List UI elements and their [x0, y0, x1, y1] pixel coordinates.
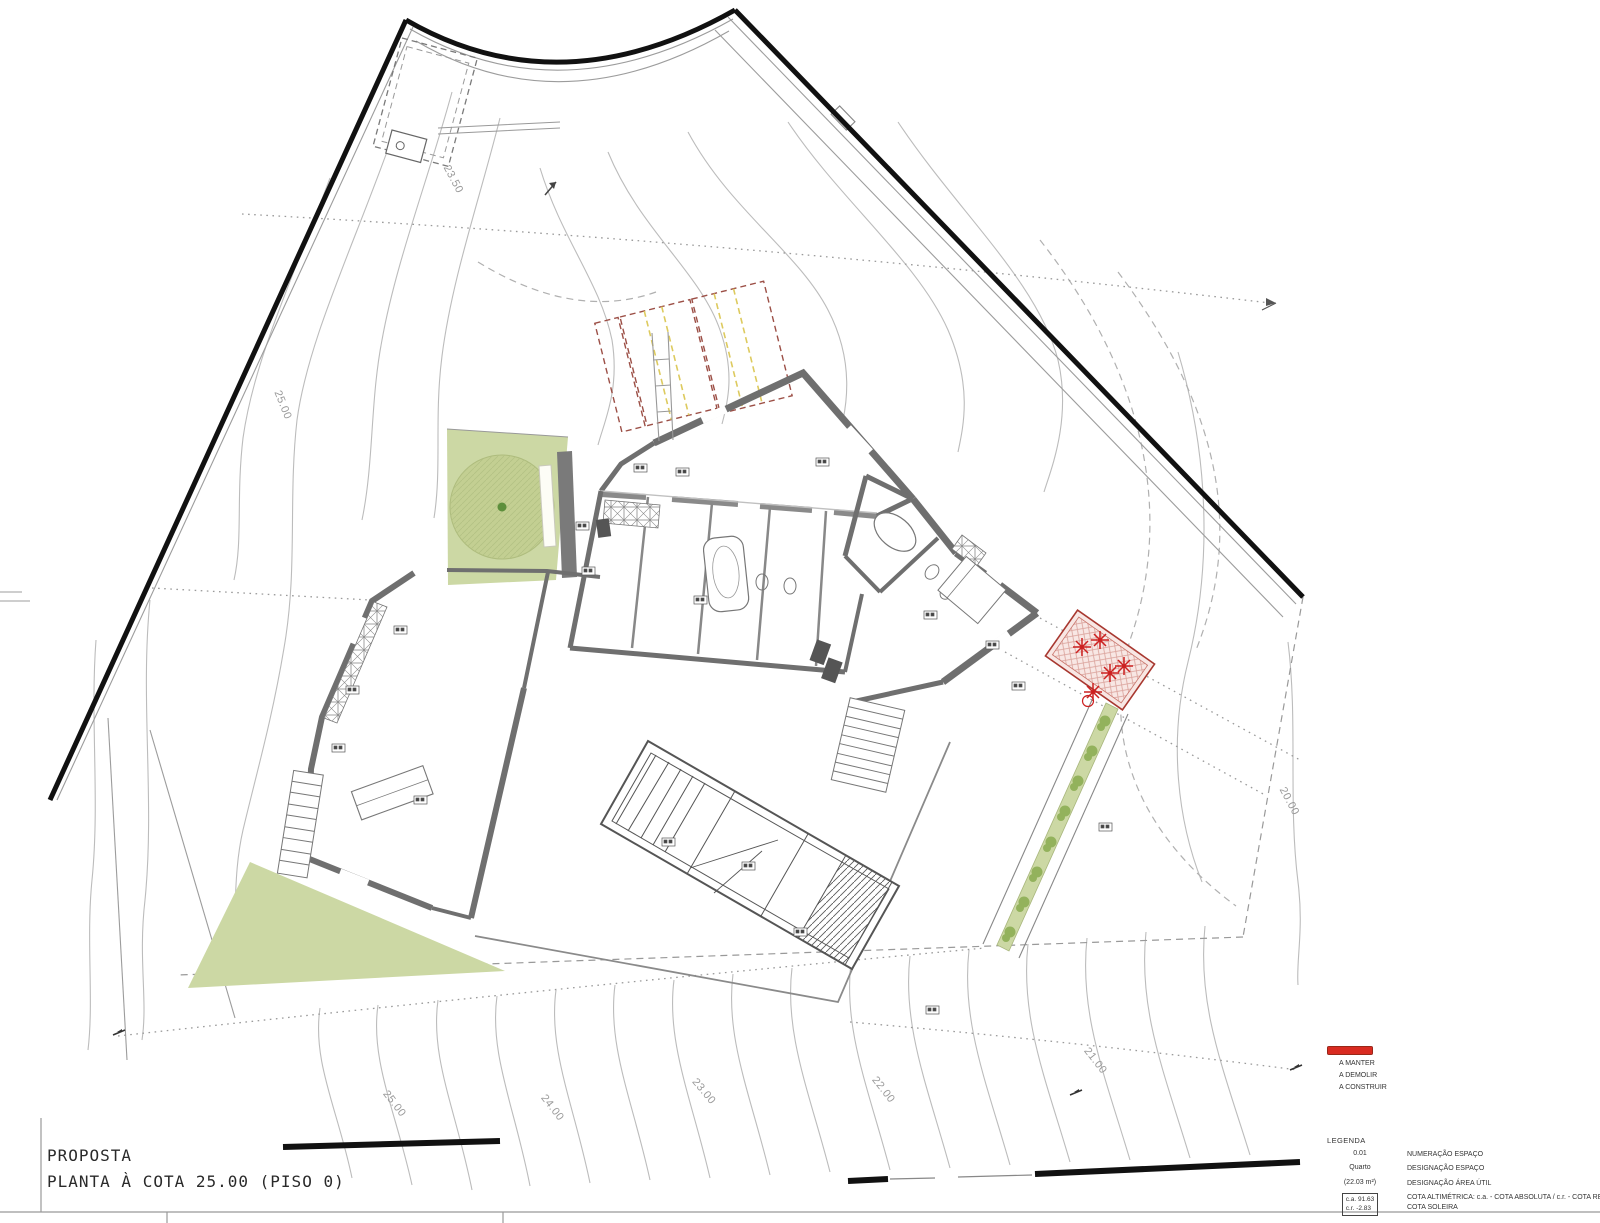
cota-box: c.a. 91.63c.r. -2.83 — [1342, 1193, 1379, 1215]
arrow-marker — [1262, 298, 1276, 310]
space-label — [346, 686, 359, 694]
toilet — [922, 562, 941, 582]
swatch-construir — [1327, 1046, 1373, 1055]
space-label — [794, 928, 807, 936]
symbol-sample: 0.01 — [1327, 1150, 1393, 1157]
space-label — [394, 626, 407, 634]
space-label — [926, 1006, 939, 1014]
symbol-description: DESIGNAÇÃO ESPAÇO — [1407, 1164, 1600, 1173]
space-label — [742, 862, 755, 870]
symbol-description: DESIGNAÇÃO ÁREA ÚTIL — [1407, 1179, 1600, 1188]
legend-row-designacao: Quarto DESIGNAÇÃO ESPAÇO — [1327, 1164, 1600, 1173]
legend-colors: LEGENDA A MANTER A DEMOLIR A CONSTRUIR — [1327, 1046, 1387, 1096]
toilet — [784, 578, 796, 594]
symbol-description: COTA ALTIMÉTRICA: c.a. - COTA ABSOLUTA /… — [1407, 1193, 1600, 1212]
title-block: PROPOSTA PLANTA À COTA 25.00 (PISO 0) — [47, 1146, 345, 1191]
kitchen-island — [351, 766, 433, 820]
space-label — [1012, 682, 1025, 690]
space-label — [1099, 823, 1112, 831]
legend-label: A DEMOLIR — [1339, 1072, 1377, 1079]
space-label — [662, 838, 675, 846]
space-label — [634, 464, 647, 472]
benchmark-marker — [1290, 1064, 1302, 1070]
site-plan-sheet: 23.50 25.00 25.00 24.00 23.00 22.00 21.0… — [0, 0, 1600, 1223]
legend-row-area: (22.03 m²) DESIGNAÇÃO ÁREA ÚTIL — [1327, 1179, 1600, 1188]
legend-symbols: LEGENDA 0.01 NUMERAÇÃO ESPAÇO Quarto DES… — [1327, 1136, 1600, 1221]
legend-label: A CONSTRUIR — [1339, 1084, 1387, 1091]
legend-row-cota: c.a. 91.63c.r. -2.83 COTA ALTIMÉTRICA: c… — [1327, 1193, 1600, 1215]
plan-drawing — [0, 0, 1600, 1223]
symbol-sample: Quarto — [1327, 1164, 1393, 1171]
red-planter — [1045, 610, 1154, 710]
cota-sample: c.a. 91.63c.r. -2.83 — [1327, 1193, 1393, 1215]
south-lawn-triangle — [188, 862, 505, 988]
kitchen-cabinets — [324, 602, 387, 723]
legend-row-demolir: A DEMOLIR — [1327, 1072, 1387, 1079]
benchmark-marker — [113, 1029, 125, 1035]
symbol-description: NUMERAÇÃO ESPAÇO — [1407, 1150, 1600, 1159]
demolition-parking-dashed — [595, 281, 792, 438]
space-label — [576, 522, 589, 530]
tree-trunk — [498, 503, 507, 512]
wardrobe-row — [603, 500, 660, 528]
courtyard-wall — [557, 451, 577, 578]
space-label — [582, 567, 595, 575]
site-boundary — [50, 10, 1303, 1181]
cota-absoluta: c.a. 91.63 — [1346, 1196, 1375, 1203]
benchmark-marker — [1070, 1089, 1082, 1095]
space-label — [816, 458, 829, 466]
symbol-sample: (22.03 m²) — [1327, 1179, 1393, 1186]
space-label — [414, 796, 427, 804]
existing-structure-dashed — [373, 38, 560, 166]
space-label — [332, 744, 345, 752]
legend-heading: LEGENDA — [1327, 1136, 1600, 1145]
space-label — [986, 641, 999, 649]
drawing-title: PROPOSTA — [47, 1146, 345, 1165]
space-label — [924, 611, 937, 619]
space-label — [676, 468, 689, 476]
space-label — [694, 596, 707, 604]
legend-row-numeracao: 0.01 NUMERAÇÃO ESPAÇO — [1327, 1150, 1600, 1159]
building-walls — [307, 373, 1037, 1002]
stairs-center — [831, 698, 904, 792]
legend-row-manter: A MANTER — [1327, 1060, 1387, 1067]
road-edges — [0, 17, 1296, 1060]
drawing-subtitle: PLANTA À COTA 25.00 (PISO 0) — [47, 1172, 345, 1191]
legend-label: A MANTER — [1339, 1060, 1375, 1067]
cota-relativa: c.r. -2.83 — [1346, 1205, 1371, 1212]
bathtub — [702, 535, 750, 613]
bed — [938, 556, 1006, 623]
legend-row-construir: A CONSTRUIR — [1327, 1084, 1387, 1091]
